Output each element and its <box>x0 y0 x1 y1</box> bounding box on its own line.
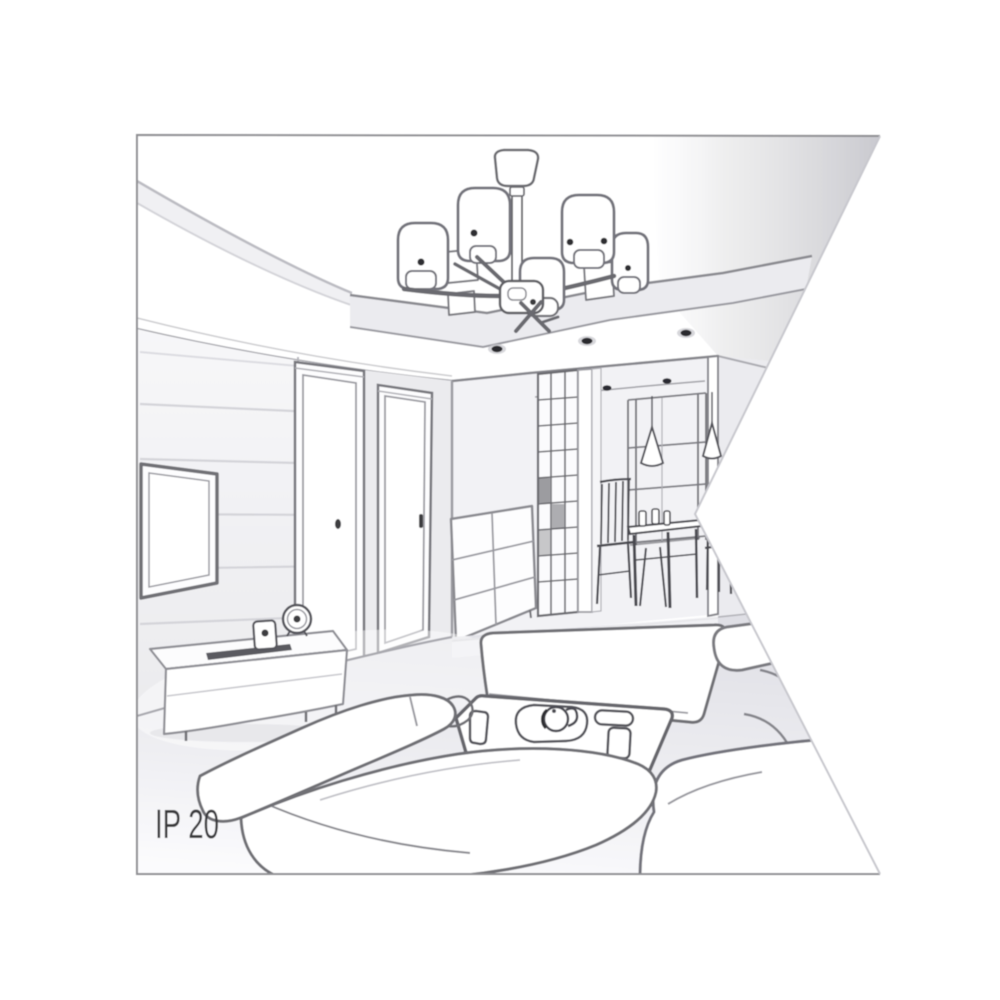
recessed-spotlight-icon <box>603 385 612 391</box>
dish-icon <box>595 710 634 726</box>
door-handle-icon <box>335 519 341 529</box>
cup-icon <box>470 711 488 744</box>
recessed-spotlight-icon <box>663 378 672 384</box>
ip-rating-label: IP 20 <box>155 801 219 847</box>
door-right <box>378 385 432 653</box>
sofa-arm-icon <box>714 621 778 670</box>
hallway-shelving-icon <box>538 368 601 616</box>
bottle-icon <box>664 511 670 525</box>
wall-tv-icon <box>141 464 217 598</box>
bottle-icon <box>639 511 646 526</box>
product-room-illustration: IP 20 <box>0 0 1000 1000</box>
teapot-icon <box>544 707 568 731</box>
bottle-icon <box>652 509 659 524</box>
glass-icon <box>607 727 631 758</box>
room-sketch-svg: IP 20 <box>0 0 1000 1000</box>
door-handle-icon <box>419 514 423 528</box>
speaker-icon <box>253 620 277 649</box>
